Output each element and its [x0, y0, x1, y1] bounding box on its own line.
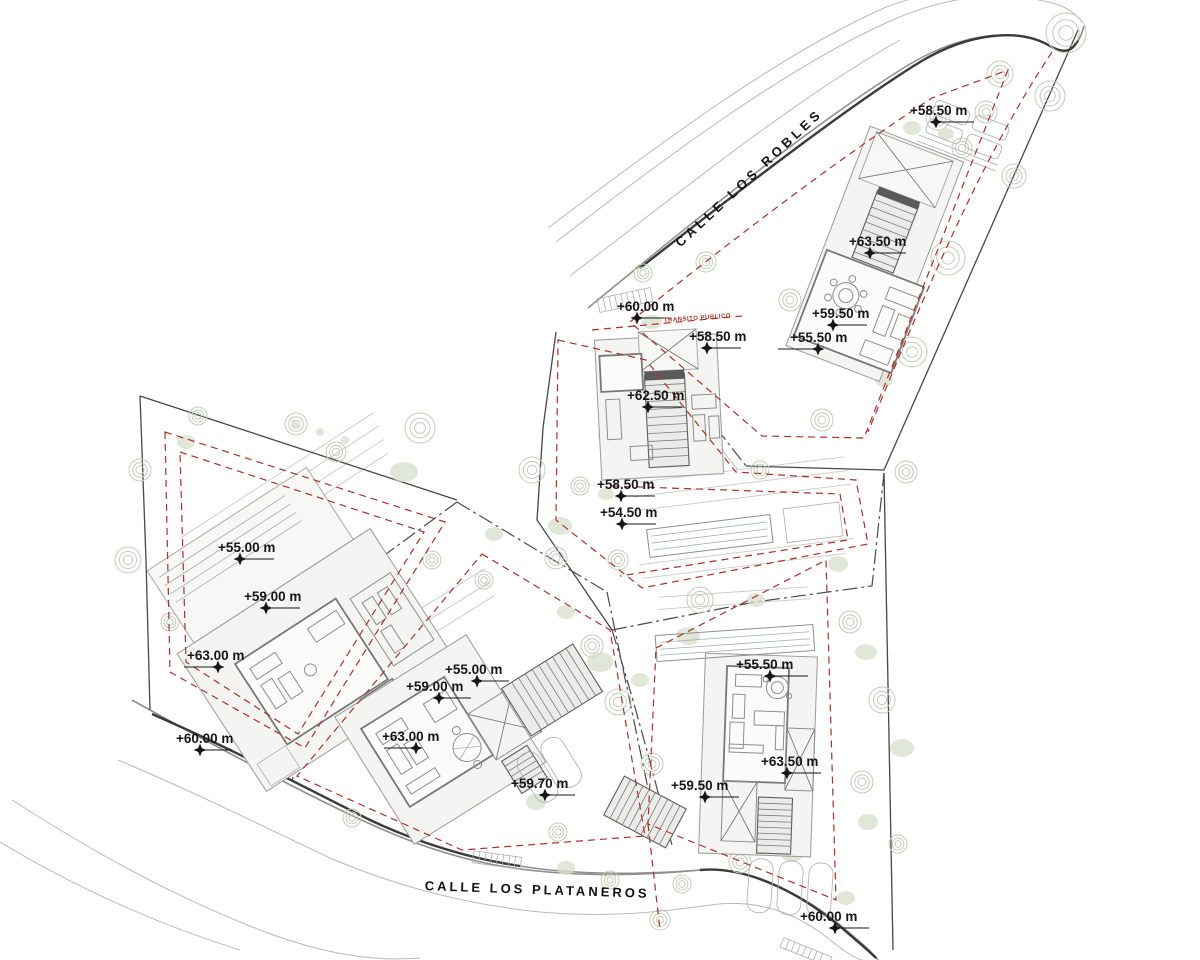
roads-layer — [0, 0, 1084, 960]
tree-icon — [519, 457, 545, 483]
elevation-label: +54.50 m — [600, 505, 657, 520]
elevation-label: +55.00 m — [445, 662, 502, 677]
elevation-label: +58.50 m — [597, 477, 654, 492]
elevation-label: +58.50 m — [910, 103, 967, 118]
tree-icon — [343, 809, 361, 827]
elevation-marker: +60.00 m — [176, 731, 233, 757]
shrub-icon — [837, 891, 855, 905]
shrub-icon — [341, 436, 349, 444]
elevation-label: +63.00 m — [382, 729, 439, 744]
elevation-label: +55.50 m — [736, 657, 793, 672]
shrub-icon — [557, 605, 575, 619]
tree-icon — [751, 461, 769, 479]
crossing-ticks — [780, 938, 832, 960]
shrub-icon — [587, 652, 613, 672]
tree-icon — [975, 101, 997, 123]
shrub-icon — [390, 462, 418, 482]
tree-icon — [115, 547, 141, 573]
shrub-icon — [291, 421, 299, 429]
elevation-label: +55.00 m — [218, 540, 275, 555]
tree-icon — [608, 550, 628, 570]
tree-icon — [549, 823, 567, 841]
elevation-label: +59.00 m — [406, 679, 463, 694]
elevation-label: +60.00 m — [617, 299, 674, 314]
shrub-icon — [903, 121, 921, 135]
elevation-label: +60.00 m — [176, 731, 233, 746]
tree-icon — [851, 771, 873, 793]
tree-icon — [189, 407, 207, 425]
tree-icon — [634, 264, 652, 282]
site-plan-page: +58.50 m+63.50 m+59.50 m+55.50 m+60.00 m… — [0, 0, 1200, 960]
elevation-label: +59.50 m — [812, 306, 869, 321]
elevation-label: +63.00 m — [187, 648, 244, 663]
tree-icon — [931, 241, 965, 275]
tree-icon — [1046, 13, 1086, 53]
tree-icon — [405, 413, 435, 443]
shrub-icon — [890, 739, 914, 757]
tree-icon — [641, 753, 663, 775]
elevation-label: +60.00 m — [800, 909, 857, 924]
shrub-icon — [485, 527, 503, 541]
tree-icon — [779, 289, 801, 311]
shrub-icon — [855, 644, 877, 660]
tree-icon — [895, 461, 917, 483]
tree-icon — [650, 910, 670, 930]
elevation-label: +58.50 m — [689, 329, 746, 344]
shrub-icon — [557, 861, 575, 875]
shrub-icon — [316, 428, 324, 436]
tree-icon — [326, 442, 346, 462]
shrub-icon — [858, 814, 878, 830]
elevation-label: +59.50 m — [671, 778, 728, 793]
tree-icon — [811, 409, 833, 431]
elevation-marker: +54.50 m — [600, 505, 657, 531]
elevation-label: +59.70 m — [511, 776, 568, 791]
elevation-label: +63.50 m — [849, 234, 906, 249]
tree-icon — [571, 477, 589, 495]
elevation-label: +55.50 m — [790, 330, 847, 345]
street-label-calle-los-robles: CALLE LOS ROBLES — [672, 106, 825, 250]
elevation-label: +63.50 m — [761, 754, 818, 769]
tree-icon — [545, 547, 567, 569]
tree-icon — [423, 551, 441, 569]
elevation-marker: +60.00 m — [800, 909, 869, 935]
vegetation-layer — [115, 13, 1086, 930]
shrub-icon — [631, 673, 649, 687]
villa-b — [594, 328, 723, 480]
tree-icon — [605, 689, 631, 715]
crossing-ticks — [472, 851, 521, 870]
tree-icon — [475, 571, 493, 589]
shrub-icon — [828, 556, 848, 572]
site-plan-drawing: +58.50 m+63.50 m+59.50 m+55.50 m+60.00 m… — [0, 0, 1200, 960]
tree-icon — [673, 875, 691, 893]
shrub-icon — [642, 315, 662, 329]
tree-icon — [889, 835, 907, 853]
shrub-icon — [747, 593, 765, 607]
easement-label: TRANSITO PUBLICO — [664, 313, 731, 324]
tree-icon — [1035, 81, 1065, 111]
tree-icon — [687, 587, 713, 613]
elevation-label: +62.50 m — [627, 388, 684, 403]
tree-icon — [129, 459, 151, 481]
elevation-label: +59.00 m — [244, 589, 301, 604]
tree-icon — [869, 687, 895, 713]
tree-icon — [987, 61, 1013, 87]
shrub-icon — [548, 517, 572, 535]
villa-b-pool — [646, 502, 843, 559]
tree-icon — [839, 611, 861, 633]
